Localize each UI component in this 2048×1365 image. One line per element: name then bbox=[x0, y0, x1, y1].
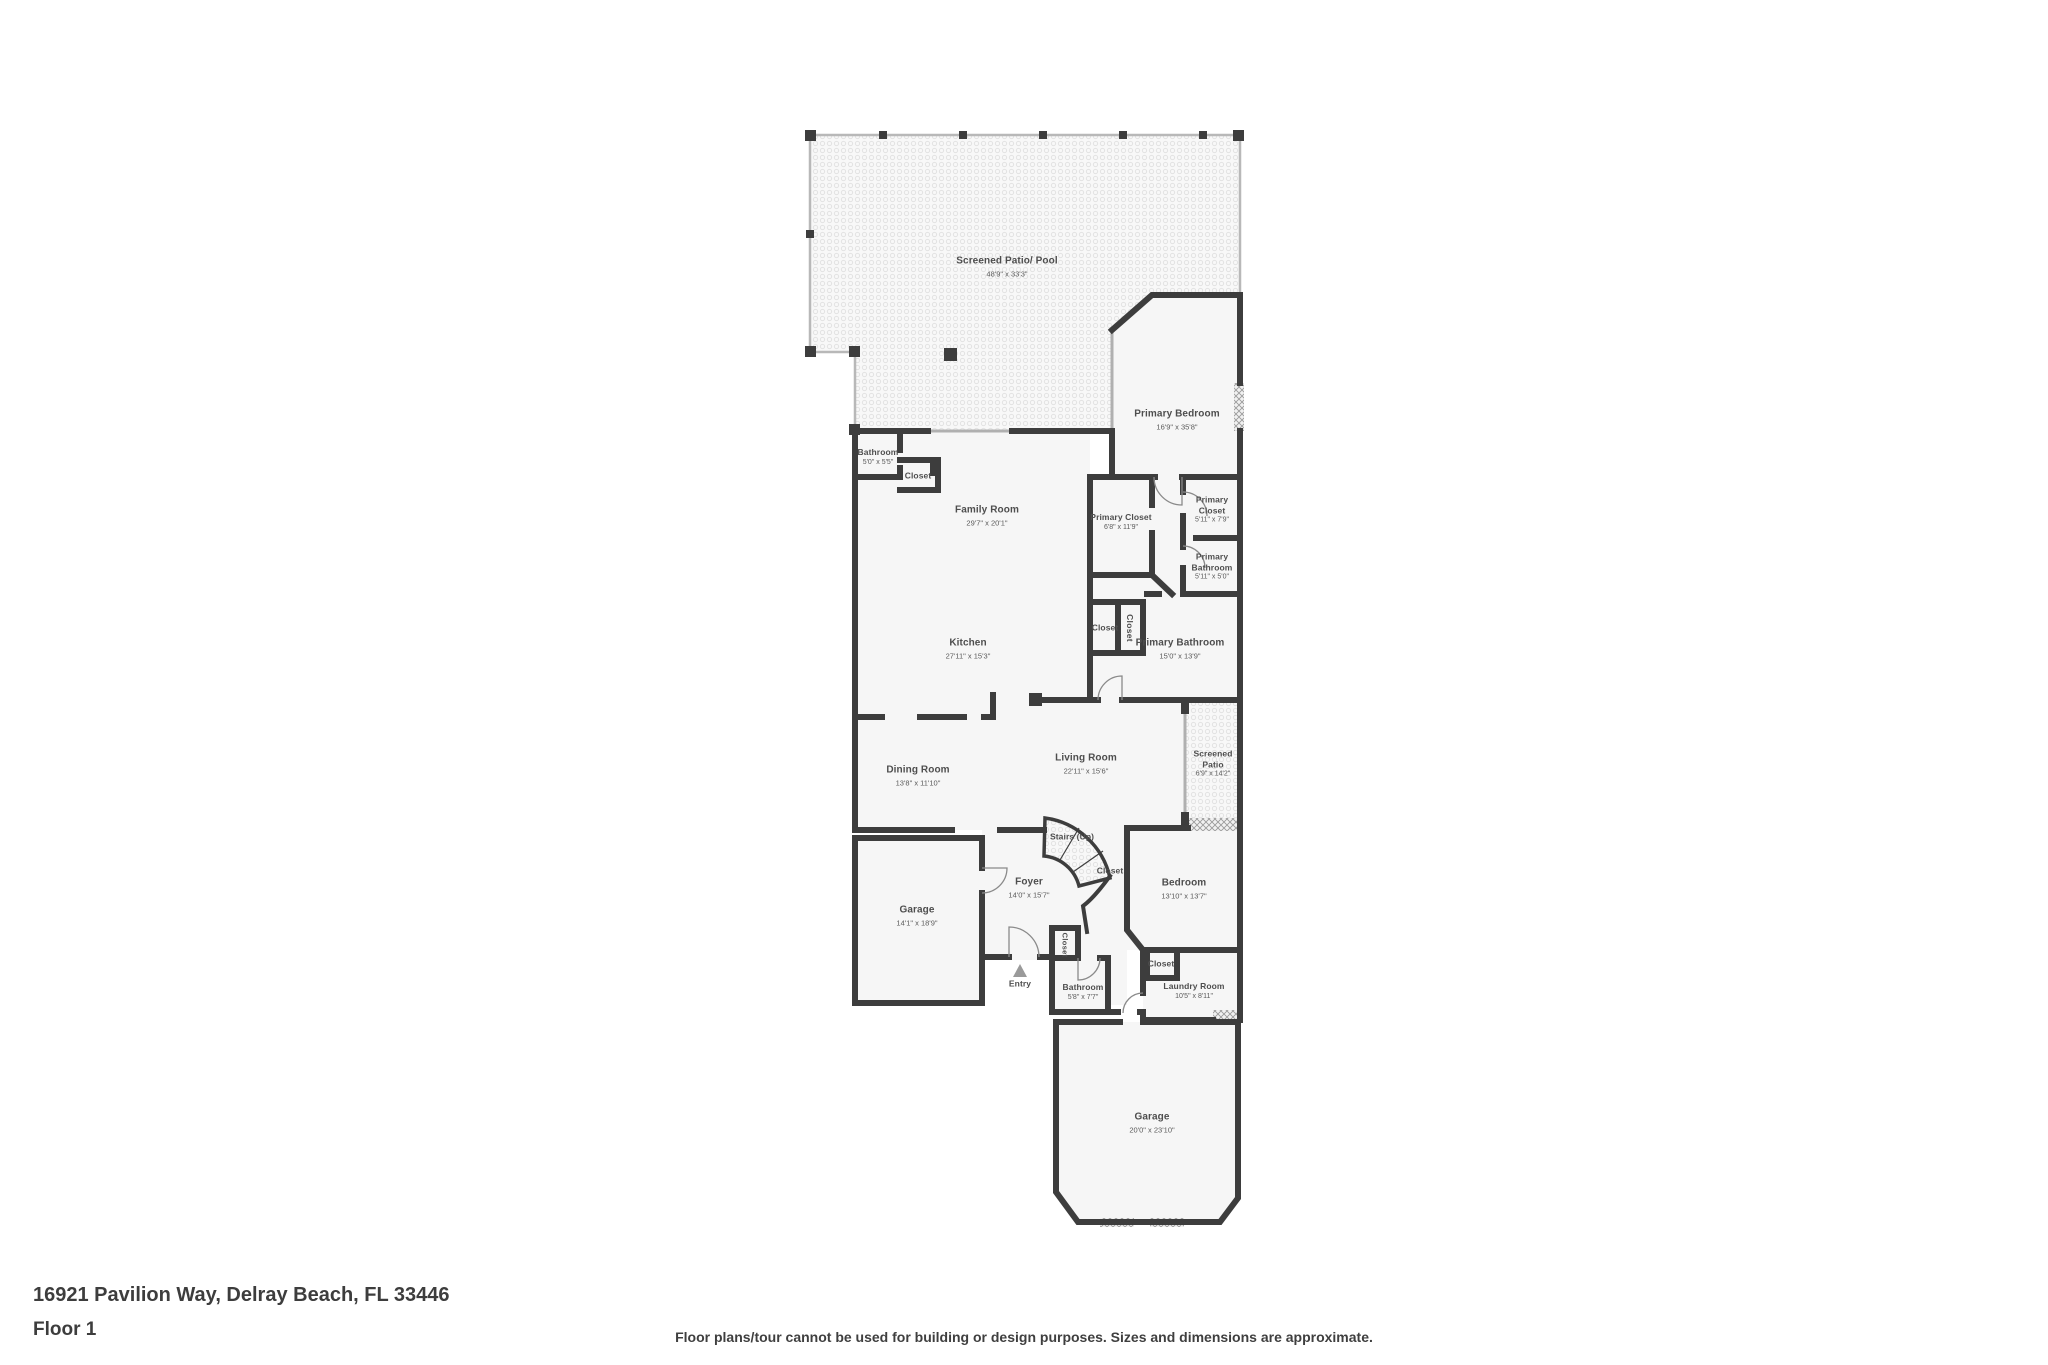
garage-2-area bbox=[1056, 1022, 1238, 1222]
property-address: 16921 Pavilion Way, Delray Beach, FL 334… bbox=[33, 1284, 450, 1307]
disclaimer-text: Floor plans/tour cannot be used for buil… bbox=[0, 1329, 2048, 1345]
primary-bedroom-area bbox=[1112, 295, 1240, 477]
entry-porch-area bbox=[985, 960, 1051, 1010]
floorplan-drawing bbox=[0, 0, 2048, 1365]
room-label-closet-5: Closet bbox=[1061, 933, 1070, 958]
room-label-closet-3: Closet bbox=[1125, 614, 1135, 642]
floorplan-page: Screened Patio/ Pool 48'9" x 33'3" Prima… bbox=[0, 0, 2048, 1365]
screened-patio-area bbox=[1185, 702, 1240, 826]
room-fills bbox=[810, 135, 1240, 1222]
